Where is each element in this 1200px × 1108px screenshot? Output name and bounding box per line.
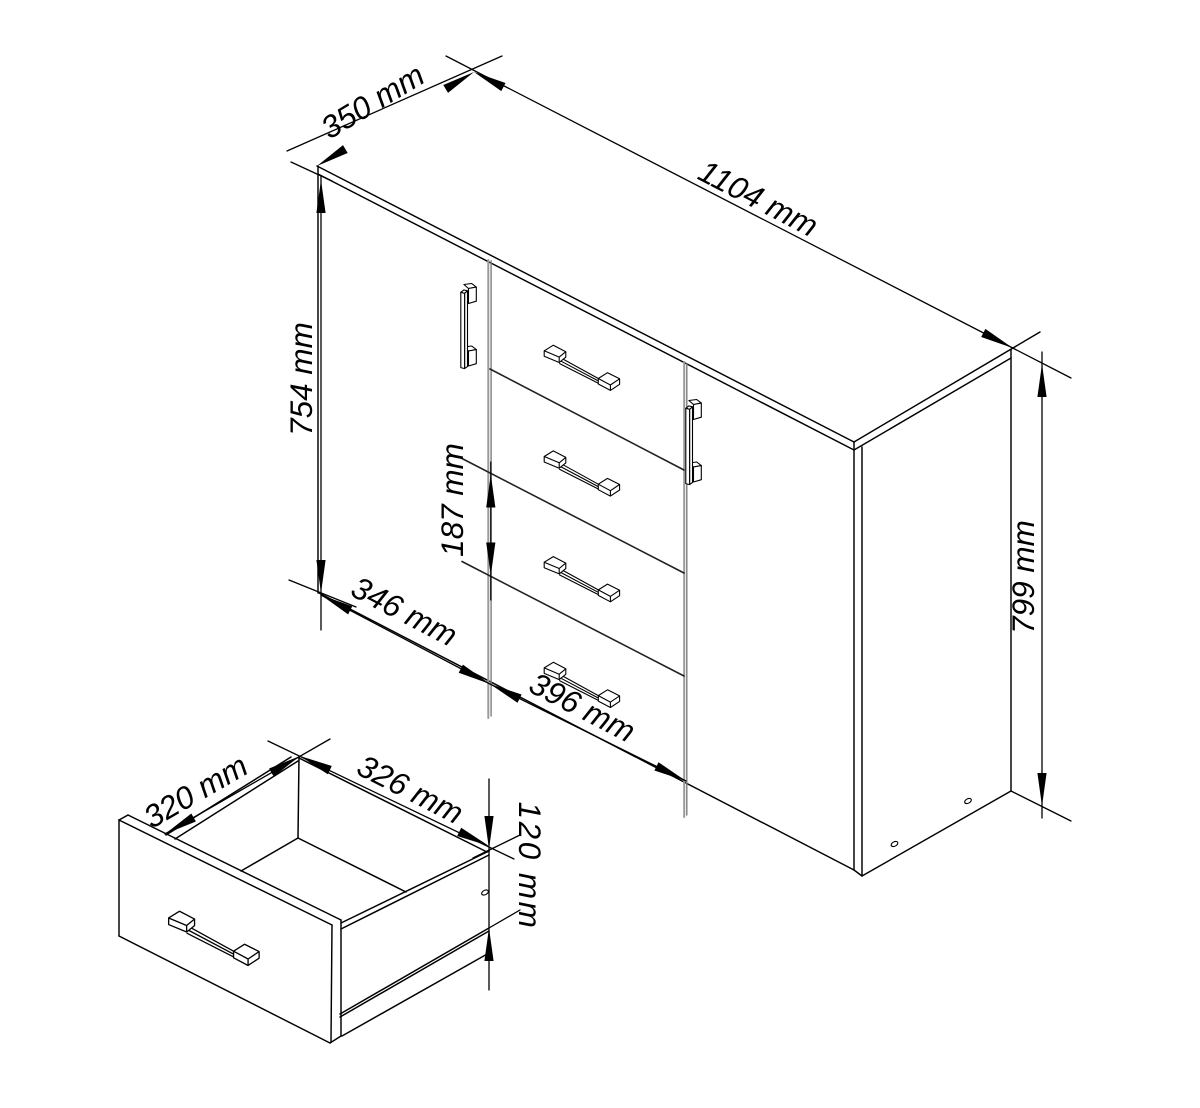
- svg-text:396 mm: 396 mm: [524, 665, 642, 749]
- svg-text:346 mm: 346 mm: [346, 569, 464, 653]
- svg-text:799 mm: 799 mm: [1005, 520, 1041, 634]
- svg-text:1104 mm: 1104 mm: [693, 152, 824, 243]
- svg-text:754 mm: 754 mm: [283, 322, 319, 436]
- svg-text:350 mm: 350 mm: [314, 56, 430, 145]
- svg-text:120 mm: 120 mm: [512, 802, 548, 931]
- svg-text:187 mm: 187 mm: [434, 443, 470, 557]
